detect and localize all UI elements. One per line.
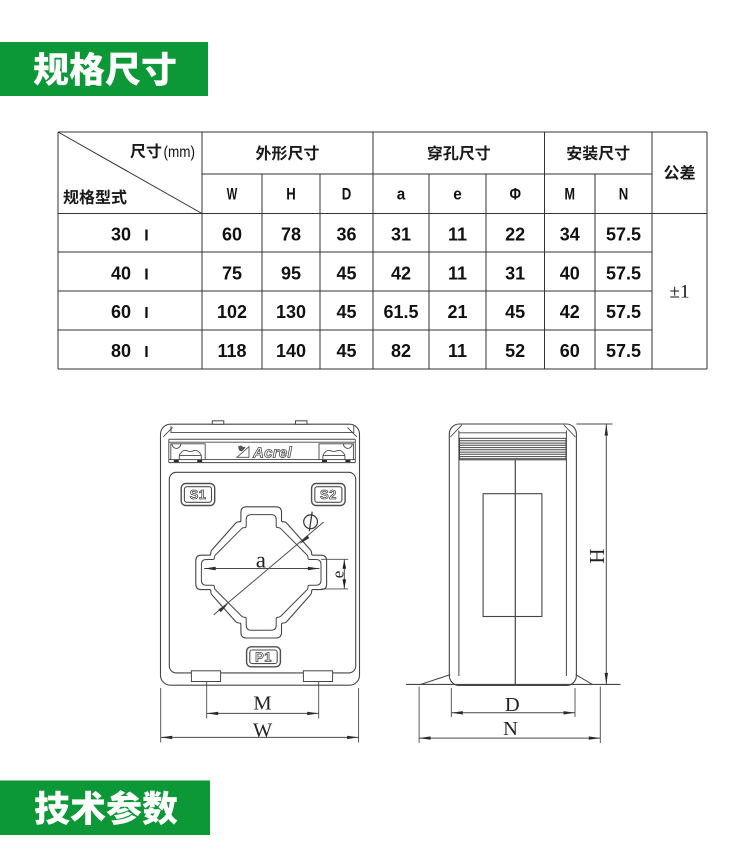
- svg-text:a: a: [397, 185, 406, 204]
- svg-text:22: 22: [505, 225, 525, 245]
- svg-text:102: 102: [217, 302, 247, 322]
- svg-text:45: 45: [336, 341, 356, 361]
- svg-text:36: 36: [336, 225, 356, 245]
- svg-text:82: 82: [391, 341, 411, 361]
- svg-text:31: 31: [505, 263, 525, 283]
- svg-text:S1: S1: [190, 487, 207, 502]
- svg-text:61.5: 61.5: [383, 302, 418, 322]
- svg-text:57.5: 57.5: [606, 302, 641, 322]
- svg-text:P1: P1: [255, 650, 272, 665]
- svg-text:60: 60: [111, 302, 131, 322]
- svg-text:11: 11: [448, 263, 467, 283]
- svg-text:M: M: [253, 692, 271, 714]
- svg-text:118: 118: [217, 341, 246, 361]
- svg-text:60: 60: [560, 341, 580, 361]
- svg-text:80: 80: [111, 341, 131, 361]
- svg-text:42: 42: [391, 263, 411, 283]
- svg-text:45: 45: [336, 263, 356, 283]
- svg-text:140: 140: [276, 341, 306, 361]
- svg-text:D: D: [505, 694, 520, 716]
- svg-text:31: 31: [391, 225, 411, 245]
- svg-text:45: 45: [336, 302, 356, 322]
- svg-text:H: H: [585, 548, 609, 563]
- svg-text:±1: ±1: [670, 282, 690, 303]
- svg-text:75: 75: [222, 263, 242, 283]
- svg-text:52: 52: [505, 341, 525, 361]
- svg-text:11: 11: [448, 225, 467, 245]
- svg-text:I: I: [144, 266, 148, 283]
- svg-text:40: 40: [560, 263, 580, 283]
- svg-text:I: I: [144, 344, 148, 361]
- svg-text:34: 34: [560, 225, 580, 245]
- svg-text:45: 45: [505, 302, 525, 322]
- svg-text:N: N: [619, 185, 629, 204]
- svg-text:S2: S2: [320, 487, 337, 502]
- svg-text:I: I: [144, 305, 148, 322]
- svg-text:e: e: [453, 185, 462, 204]
- svg-text:57.5: 57.5: [606, 263, 641, 283]
- svg-text:D: D: [342, 185, 352, 204]
- svg-text:W: W: [253, 719, 273, 741]
- svg-text:Acrel: Acrel: [252, 445, 293, 462]
- svg-text:40: 40: [111, 263, 131, 283]
- svg-text:57.5: 57.5: [606, 341, 641, 361]
- svg-text:60: 60: [222, 225, 242, 245]
- svg-text:130: 130: [276, 302, 306, 322]
- svg-text:11: 11: [448, 341, 467, 361]
- svg-text:I: I: [144, 228, 148, 245]
- svg-text:N: N: [503, 718, 518, 740]
- svg-text:30: 30: [111, 225, 131, 245]
- svg-text:57.5: 57.5: [606, 225, 641, 245]
- svg-text:95: 95: [281, 263, 301, 283]
- svg-text:H: H: [286, 185, 296, 204]
- svg-text:78: 78: [281, 225, 301, 245]
- svg-text:e: e: [328, 571, 347, 579]
- svg-text:W: W: [227, 185, 238, 204]
- svg-text:(mm): (mm): [164, 144, 196, 161]
- svg-text:Φ: Φ: [509, 185, 521, 204]
- svg-text:21: 21: [447, 302, 467, 322]
- svg-text:a: a: [256, 547, 266, 572]
- svg-text:M: M: [565, 185, 576, 204]
- svg-text:42: 42: [560, 302, 580, 322]
